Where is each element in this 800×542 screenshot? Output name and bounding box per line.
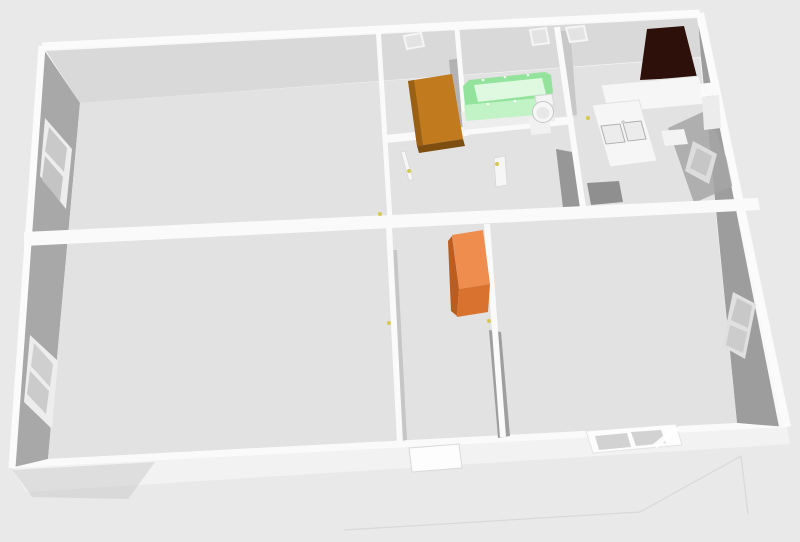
hallway-door-left-handle[interactable] [407,169,411,173]
hallway-door-right-handle[interactable] [495,162,499,166]
kitchen-floor-mat [661,129,688,146]
bathtub-highlight-3 [527,74,530,77]
bottom-window-pane-left [595,433,631,450]
small-window-bathroom[interactable] [530,28,549,45]
entry-door[interactable] [409,444,462,472]
floorplan-3d-scene [0,0,800,542]
entry-wardrobe-front [457,284,490,317]
bathtub-highlight-4 [487,103,490,106]
bathtub-highlight-5 [514,100,517,103]
toilet-bowl-inner [537,107,550,119]
livingroom-door-handle[interactable] [378,212,382,216]
kitchen-doorway-shadow [587,181,623,205]
hallway-door-right-leaf[interactable] [494,156,507,187]
bathtub-highlight-1 [482,79,485,82]
kitchen-sink-faucet [621,120,625,124]
small-window-closet[interactable] [404,33,424,49]
kitchen-tall-cabinet-top[interactable] [699,82,719,97]
small-window-kitchen[interactable] [566,26,587,42]
kitchen-tall-cabinet-front [702,95,721,130]
floorplan-3d-view[interactable] [0,0,800,542]
bottomleft-room-door-handle[interactable] [387,321,391,325]
kitchen-door-handle[interactable] [586,116,590,120]
bedroom-door-handle[interactable] [487,319,491,323]
bathtub-highlight-2 [504,76,507,79]
